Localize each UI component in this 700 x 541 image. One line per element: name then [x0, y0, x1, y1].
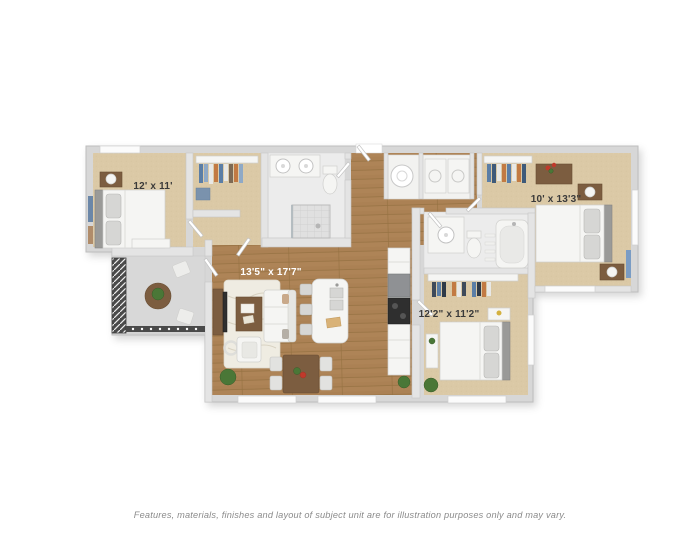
floors — [93, 153, 631, 395]
living-window-2 — [318, 396, 376, 403]
lamp-icon — [106, 174, 116, 184]
table-plant-icon — [294, 368, 301, 375]
bed — [536, 205, 612, 262]
armchair — [237, 337, 261, 362]
room-label-bedroom-lower: 12'2" x 11'2" — [419, 309, 480, 320]
stove — [388, 298, 410, 324]
island-sink — [330, 288, 343, 298]
bed — [440, 322, 510, 380]
kitchen-counter — [388, 248, 410, 375]
dresser — [132, 239, 170, 248]
toilet-icon — [467, 231, 481, 258]
dryer — [448, 159, 469, 193]
wall-art — [626, 250, 631, 278]
plant-icon — [398, 376, 410, 388]
shower — [292, 205, 330, 238]
sofa — [264, 290, 296, 342]
balcony-railing — [112, 258, 126, 333]
nightstand — [488, 308, 510, 320]
balcony-railing-bottom — [126, 326, 205, 332]
floorplan-svg: 12' x 11' 13'5" x 17'7" 10' x 13'3" 12'2… — [0, 0, 700, 541]
flowers-icon — [300, 372, 306, 378]
room-label-living: 13'5" x 17'7" — [240, 267, 301, 278]
folded-clothes — [196, 188, 210, 200]
dining-chair — [320, 376, 332, 390]
washer — [425, 159, 446, 193]
bedroom-right-lower-window — [545, 286, 595, 292]
plant-icon — [220, 369, 236, 385]
kitchen-island — [312, 279, 348, 343]
cutting-board — [326, 317, 341, 328]
coffee-table — [236, 297, 262, 331]
refrigerator — [388, 274, 410, 297]
plant-icon — [429, 338, 435, 344]
room-label-bedroom-left: 12' x 11' — [133, 181, 172, 192]
hanging-clothes — [199, 164, 243, 184]
floor-plan-image: 12' x 11' 13'5" x 17'7" 10' x 13'3" 12'2… — [0, 0, 700, 541]
closet-shelf — [428, 274, 518, 281]
dining-chair — [320, 357, 332, 371]
bathtub-icon — [496, 220, 528, 268]
bedroom-lower-side-window — [528, 315, 534, 365]
closet-shelf — [196, 156, 258, 163]
tv-console — [213, 289, 227, 335]
closet-shelf — [484, 156, 532, 163]
wall-art — [88, 196, 93, 222]
room-label-bedroom-right: 10' x 13'3" — [531, 194, 582, 205]
tv-icon — [223, 292, 227, 332]
disclaimer-text: Features, materials, finishes and layout… — [0, 510, 700, 520]
bedroom-left-window — [100, 146, 140, 153]
bar-stools — [300, 284, 312, 335]
lamp-icon — [585, 187, 595, 197]
washer-icon — [391, 165, 413, 187]
bedroom-right-window — [632, 190, 638, 245]
toilet-icon — [323, 166, 337, 194]
plant-icon — [424, 378, 438, 392]
dresser — [536, 163, 572, 184]
flowers-icon — [497, 311, 502, 316]
bedroom-lower-window — [448, 396, 506, 403]
wall-art-2 — [88, 226, 93, 244]
lamp-icon — [607, 267, 617, 277]
dining-chair — [270, 376, 282, 390]
living-window — [238, 396, 296, 403]
dining-chair — [270, 357, 282, 371]
patio-plant-icon — [152, 288, 164, 300]
